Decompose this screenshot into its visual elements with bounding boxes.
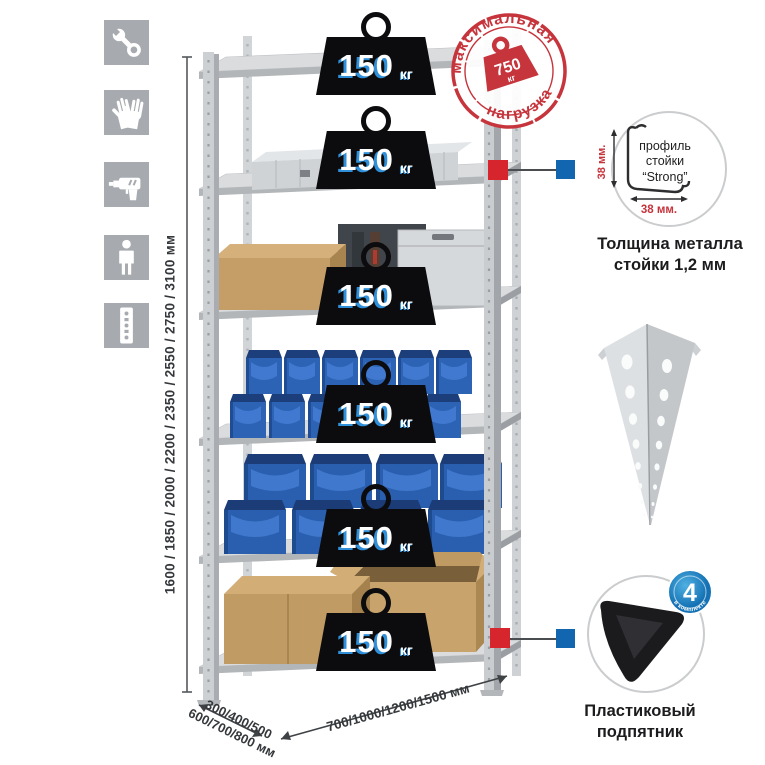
badge-sparkle-icon: ✦: [671, 570, 679, 580]
profile-label-1: профиль: [639, 139, 691, 153]
load-value: 150: [339, 520, 394, 556]
load-unit: кг: [400, 296, 413, 312]
product-infographic: максимальная нагрузка 750 кг 38 мм. 38 м…: [0, 0, 765, 765]
load-value: 150: [339, 142, 394, 178]
person-icon: [104, 235, 149, 280]
rack-post-icon: [104, 303, 149, 348]
load-value: 150: [339, 624, 394, 660]
quantity-badge: 4 в комплекте ✦: [668, 570, 712, 614]
max-load-stamp: максимальная нагрузка 750 кг: [434, 0, 582, 142]
profile-label-2: стойки: [646, 154, 684, 168]
shelf2-load-badge: 150кг: [316, 106, 436, 189]
shelf3-load-badge: 150кг: [316, 242, 436, 325]
load-value: 150: [339, 396, 394, 432]
profile-caption-line1: Толщина металла: [584, 234, 756, 255]
drill-icon: [104, 162, 149, 207]
height-dimension-label: 1600 / 1850 / 2000 / 2200 / 2350 / 2550 …: [163, 208, 178, 622]
shelf6-load-badge: 150кг: [316, 588, 436, 671]
shelf4-load-badge: 150кг: [316, 360, 436, 443]
wrench-icon: [104, 20, 149, 65]
height-dimension-line: [182, 57, 192, 692]
profile-caption: Толщина металла стойки 1,2 мм: [584, 234, 756, 277]
blue-marker-top: [556, 160, 575, 179]
load-unit: кг: [400, 414, 413, 430]
gloves-icon: [104, 90, 149, 135]
foot-caption: Пластиковый подпятник: [554, 701, 726, 744]
feature-icon-gloves: [104, 90, 149, 135]
feature-icon-assembly: [104, 20, 149, 65]
profile-callout-connector: [488, 160, 575, 180]
shelf1-load-badge: 150кг: [316, 12, 436, 95]
red-marker-top: [488, 160, 508, 180]
load-unit: кг: [400, 66, 413, 82]
red-marker-bottom: [490, 628, 510, 648]
load-value: 150: [339, 278, 394, 314]
foot-callout-connector: [490, 628, 575, 648]
feature-icon-drill: [104, 162, 149, 207]
badge-number: 4: [683, 579, 697, 607]
load-unit: кг: [400, 642, 413, 658]
foot-detail: 4 в комплекте ✦: [588, 570, 712, 692]
feature-icon-post: [104, 303, 149, 348]
foot-caption-line1: Пластиковый: [554, 701, 726, 722]
angle-post-image: [598, 324, 701, 525]
feature-icon-person: [104, 235, 149, 280]
blue-marker-bottom: [556, 629, 575, 648]
profile-dim-horizontal: 38 мм.: [641, 204, 677, 216]
shelf5-load-badge: 150кг: [316, 484, 436, 567]
load-unit: кг: [400, 538, 413, 554]
load-unit: кг: [400, 160, 413, 176]
load-value: 150: [339, 48, 394, 84]
profile-detail: 38 мм. 38 мм. профиль стойки “Strong”: [596, 112, 726, 226]
profile-label-3: “Strong”: [642, 170, 687, 184]
profile-caption-line2: стойки 1,2 мм: [584, 255, 756, 276]
profile-dim-vertical: 38 мм.: [596, 145, 608, 180]
foot-caption-line2: подпятник: [554, 722, 726, 743]
